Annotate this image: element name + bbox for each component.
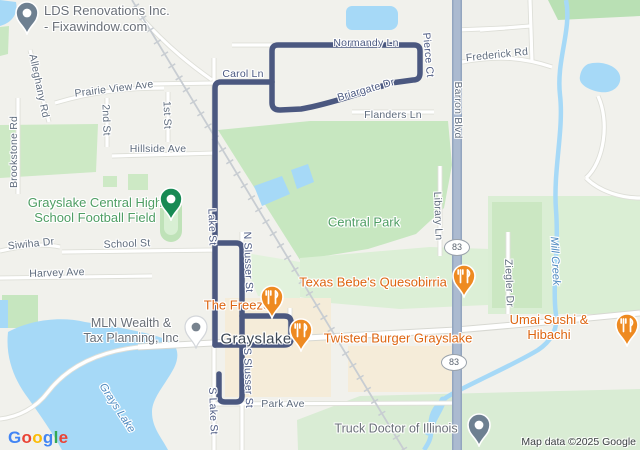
map-canvas[interactable]: Brookstone RdAlleghany RdPrairie View Av… — [0, 0, 640, 450]
google-logo-letter: G — [8, 428, 22, 447]
map-attribution: Map data ©2025 Google — [521, 436, 636, 448]
google-logo-letter: e — [59, 428, 69, 447]
route-overlay — [0, 0, 640, 450]
google-logo[interactable]: Google — [8, 428, 68, 448]
google-logo-letter: g — [43, 428, 54, 447]
google-logo-letter: o — [32, 428, 43, 447]
google-logo-letter: o — [22, 428, 33, 447]
